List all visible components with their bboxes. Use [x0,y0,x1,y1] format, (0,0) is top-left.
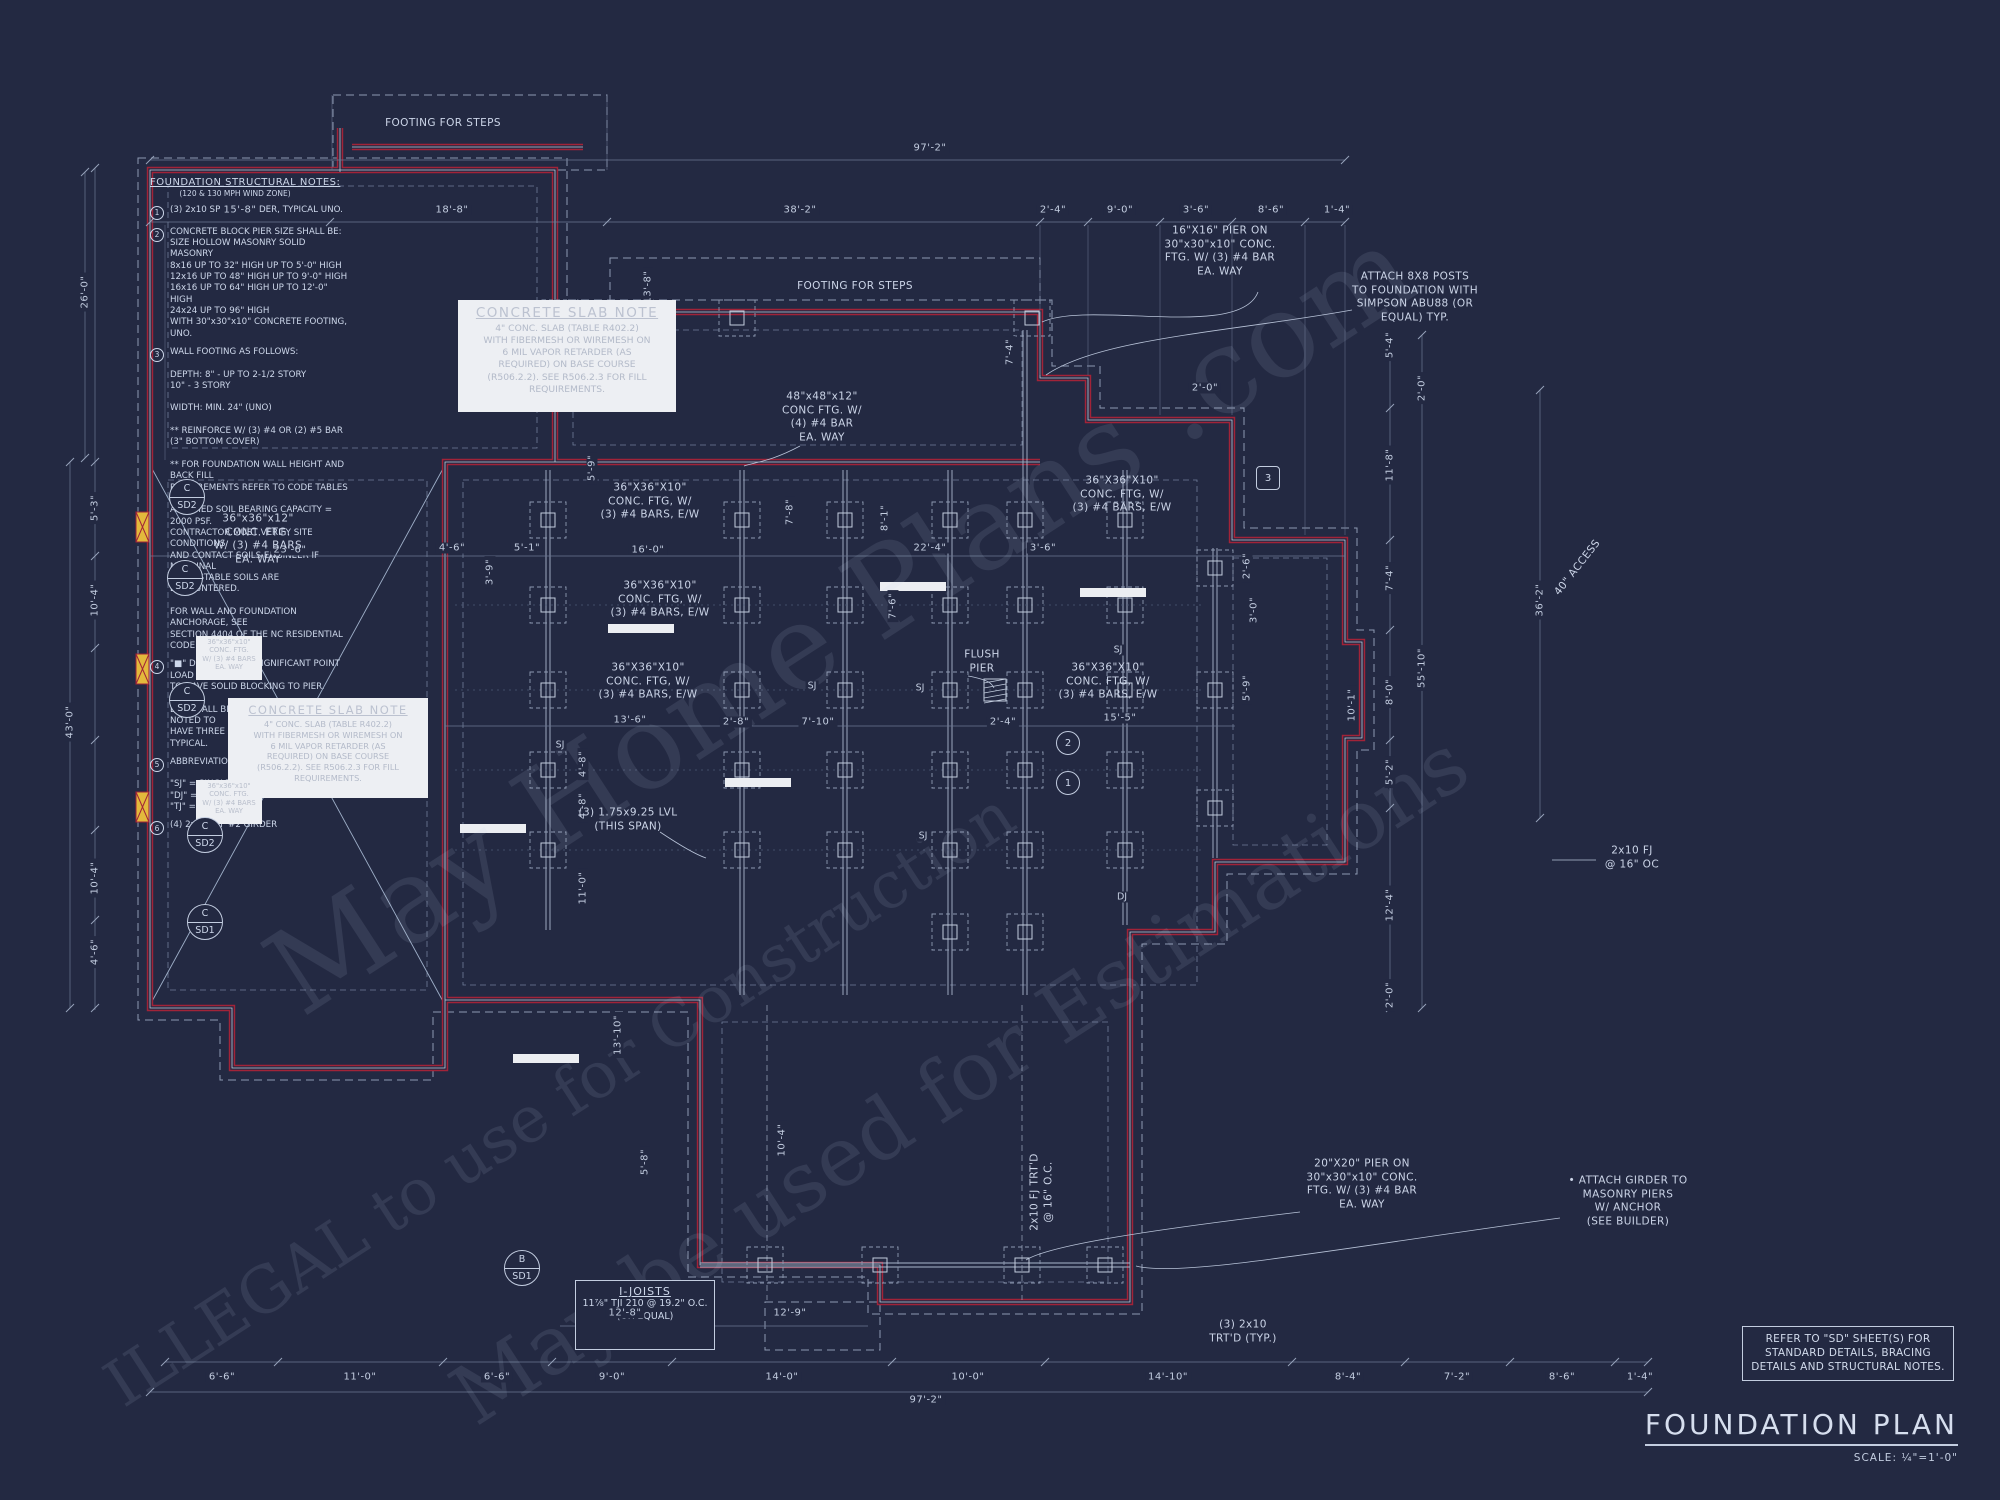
dimension-label: 13'-6" [610,715,649,726]
dimension-label: 6'-6" [481,1372,513,1383]
annotation: (3) 1.75x9.25 LVL (THIS SPAN) [578,806,677,833]
dimension-label: 3'-0" [1249,594,1260,626]
slab-note-title: CONCRETE SLAB NOTE [231,703,425,717]
callout-sheet: SD2 [170,498,204,515]
annotation: 36"X36"X10" CONC. FTG, W/ (3) #4 BARS, E… [610,580,709,621]
detail-callout: CSD2 [169,479,205,515]
dimension-label: 2'-0" [1189,383,1221,394]
dimension-label: 12'-4" [1385,885,1396,924]
refer-note-text: REFER TO "SD" SHEET(S) FOR STANDARD DETA… [1751,1333,1945,1373]
annotation: FOOTING FOR STEPS [385,117,501,131]
dimension-label: 7'-4" [1005,336,1016,368]
callout-letter: C [188,905,222,923]
note-number: 3 [150,348,164,362]
joist-tag: SJ [806,681,819,692]
dimension-label: 7'-10" [798,717,837,728]
annotation: FOOTING FOR STEPS [797,280,913,294]
annotation: ATTACH 8X8 POSTS TO FOUNDATION WITH SIMP… [1352,271,1478,326]
dimension-label: 7'-6" [888,590,899,622]
i-joists-title: I-JOISTS [578,1285,712,1298]
dimension-label: 12'-9" [770,1308,809,1319]
callout-sheet: SD1 [505,1269,539,1286]
dimension-label: 2'-0" [1417,372,1428,404]
annotation: 2x10 FJ TRT'D @ 16" O.C. [1028,1153,1055,1231]
ref-marker: 2 [1056,731,1080,755]
annotation: 2x10 FJ @ 16" OC [1605,844,1659,871]
dimension-label: 10'-0" [948,1372,987,1383]
dimension-label: 3'-6" [1027,543,1059,554]
dimension-label: 9'-0" [1104,205,1136,216]
concrete-slab-note: CONCRETE SLAB NOTE4" CONC. SLAB (TABLE R… [458,300,676,412]
dimension-label: 4'-8" [578,748,589,780]
dimension-label: 3'-9" [485,556,496,588]
callout-letter: B [505,1251,539,1269]
dimension-label: 13'-10" [613,1012,624,1058]
dimension-label: 4'-6" [90,936,101,968]
note-number: 2 [150,228,164,242]
joist-tag: SJ [914,683,927,694]
dimension-label: 2'-6" [1242,550,1253,582]
dimension-label: 10'-4" [90,858,101,897]
note-number: 4 [150,660,164,674]
annotation: 40" ACCESS [1552,537,1604,598]
annotation: 36"X36"X10" CONC. FTG, W/ (3) #4 BARS, E… [598,662,697,703]
annotation: 36"X36"X10" CONC. FTG, W/ (3) #4 BARS, E… [600,482,699,523]
dimension-label: 26'-0" [80,272,91,311]
dimension-label: 2'-4" [1037,205,1069,216]
dimension-label: 97'-2" [910,143,949,154]
dimension-label: 97'-2" [906,1395,945,1406]
dimension-label: 8'-4" [1332,1372,1364,1383]
structural-note-item: 2CONCRETE BLOCK PIER SIZE SHALL BE: SIZE… [150,227,350,340]
dimension-label: 9'-0" [596,1372,628,1383]
annotation: 48"x48"x12" CONC FTG. W/ (4) #4 BAR EA. … [782,391,862,446]
dimension-label: 10'-4" [777,1120,788,1159]
detail-callout: BSD1 [504,1250,540,1286]
ref-marker: 3 [1256,466,1280,490]
dimension-label: 14'-10" [1145,1372,1191,1383]
ref-marker: 1 [1056,771,1080,795]
dimension-label: 10'-1" [1347,685,1358,724]
annotation: (3) 2x10 TRT'D (TYP.) [1209,1318,1277,1345]
detail-callout: CSD2 [187,817,223,853]
dimension-label: 11'-0" [578,868,589,907]
dimension-label: 5'-9" [1242,672,1253,704]
annotation: FLUSH PIER [964,648,1000,675]
dimension-label: 36'-2" [1535,580,1546,619]
dimension-label: 3'-6" [1180,205,1212,216]
dimension-label: 8'-6" [1255,205,1287,216]
note-number: 1 [150,206,164,220]
annotation: 36"X36"X10" CONC. FTG, W/ (3) #4 BARS, E… [1058,662,1157,703]
dimension-label: 1'-4" [1624,1372,1656,1383]
dimension-label: 11'-8" [1385,445,1396,484]
dimension-label: 16'-0" [628,545,667,556]
dimension-label: 2'-0" [1385,979,1396,1011]
callout-sheet: SD2 [170,701,204,718]
blueprint-sheet: May Home Plans .comILLEGAL to use for Co… [0,0,2000,1500]
dimension-label: 4'-6" [436,543,468,554]
i-joists-lines: 11⅞" TJI 210 @ 19.2" O.C. (OR EQUAL) [578,1298,712,1324]
refer-to-sd-note: REFER TO "SD" SHEET(S) FOR STANDARD DETA… [1742,1326,1954,1381]
callout-sheet: SD2 [188,836,222,853]
slab-note-body: 4" CONC. SLAB (TABLE R402.2) WITH FIBERM… [231,719,425,784]
annotation: 20"X20" PIER ON 30"x30"x10" CONC. FTG. W… [1306,1158,1417,1213]
dimension-label: 2'-4" [987,717,1019,728]
detail-callout: CSD1 [187,904,223,940]
i-joists-note: I-JOISTS 11⅞" TJI 210 @ 19.2" O.C. (OR E… [575,1280,715,1350]
note-number: 6 [150,821,164,835]
dimension-label: 8'-1" [880,502,891,534]
dimension-label: 5'-8" [640,1146,651,1178]
notes-subtitle: (120 & 130 MPH WIND ZONE) [150,189,320,199]
note-text: CONCRETE BLOCK PIER SIZE SHALL BE: SIZE … [170,227,350,340]
joist-tag: SJ [917,831,930,842]
callout-sheet: SD2 [168,579,202,596]
annotation: 36"x36"x12" CONC. FTG. W/ (3) #4 BARS EA… [214,513,302,568]
dimension-label: 1'-4" [1321,205,1353,216]
slab-note-body: 4" CONC. SLAB (TABLE R402.2) WITH FIBERM… [461,323,673,396]
callout-letter: C [188,818,222,836]
dimension-label: 22'-4" [910,543,949,554]
dimension-label: 12'-8" [605,1308,644,1319]
annotation: • ATTACH GIRDER TO MASONRY PIERS W/ ANCH… [1568,1175,1687,1230]
plan-title: FOUNDATION PLAN [1645,1408,1958,1446]
footing-size-box: 36"x36"x10" CONC. FTG. W/ (3) #4 BARS EA… [196,636,262,680]
dimension-label: 8'-0" [1385,676,1396,708]
slab-note-title: CONCRETE SLAB NOTE [461,305,673,321]
joist-tag: DJ [1115,892,1129,903]
note-number: 5 [150,758,164,772]
dimension-label: 18'-8" [432,205,471,216]
joist-tag: SJ [554,740,567,751]
dimension-label: 55'-10" [1417,645,1428,691]
dimension-label: 5'-4" [1385,329,1396,361]
dimension-label: 14'-0" [762,1372,801,1383]
dimension-label: 7'-4" [1385,562,1396,594]
dimension-label: 11'-0" [340,1372,379,1383]
dimension-label: 2'-8" [720,717,752,728]
dimension-label: 10'-4" [90,580,101,619]
dimension-label: 7'-8" [785,496,796,528]
annotation: 16"X16" PIER ON 30"x30"x10" CONC. FTG. W… [1164,225,1275,280]
notes-title: FOUNDATION STRUCTURAL NOTES: [150,176,350,189]
dimension-label: 5'-2" [1385,756,1396,788]
joist-tag: SJ [1112,645,1125,656]
dimension-label: 5'-1" [511,543,543,554]
dimension-label: 15'-8" [220,205,259,216]
callout-letter: C [170,683,204,701]
detail-callout: CSD2 [167,560,203,596]
annotation: 36"X36"X10" CONC. FTG, W/ (3) #4 BARS, E… [1072,475,1171,516]
detail-callout: CSD2 [169,682,205,718]
dimension-label: 5'-3" [90,492,101,524]
dimension-label: 5'-9" [587,452,598,484]
plan-scale: SCALE: ¼"=1'-0" [1854,1452,1958,1464]
dimension-label: 7'-2" [1441,1372,1473,1383]
dimension-label: 38'-2" [780,205,819,216]
dimension-label: 6'-6" [206,1372,238,1383]
dimension-label: 43'-0" [65,702,76,741]
dimension-label: 8'-6" [1546,1372,1578,1383]
dimension-label: 15'-5" [1100,713,1139,724]
callout-letter: C [168,561,202,579]
callout-sheet: SD1 [188,923,222,940]
callout-letter: C [170,480,204,498]
